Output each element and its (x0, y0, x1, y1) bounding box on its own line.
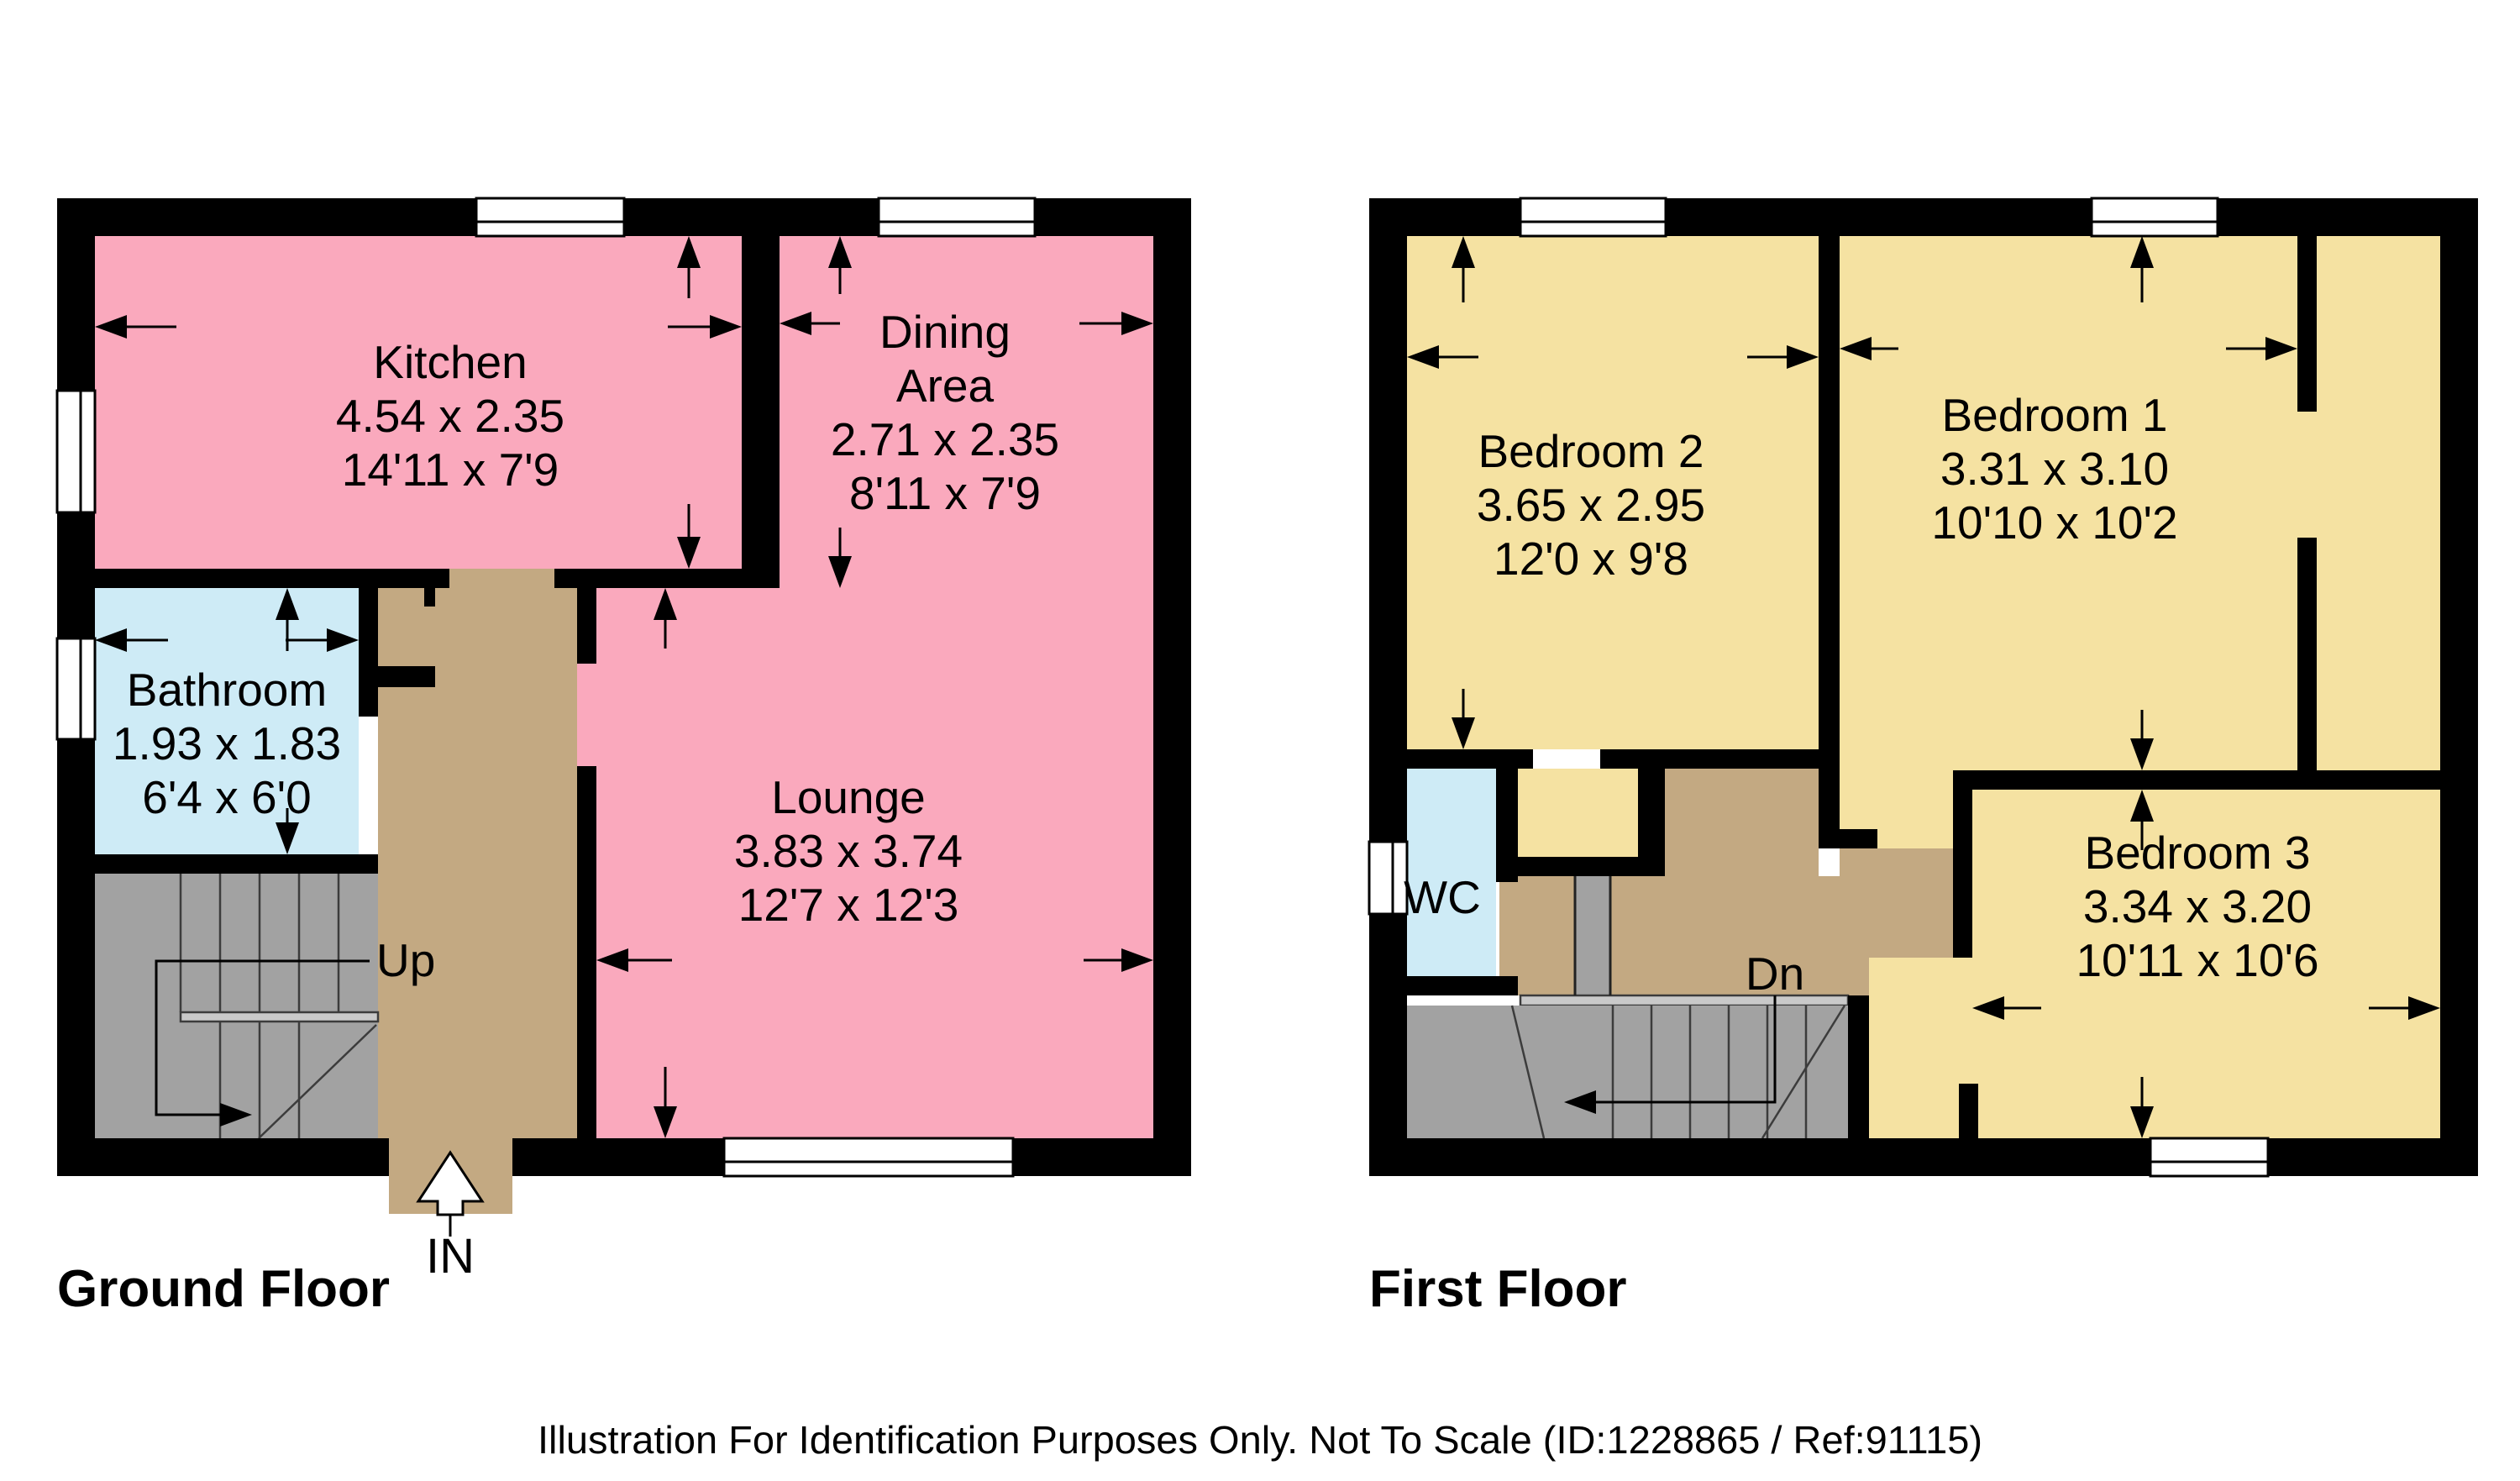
dining-top-window (879, 198, 1035, 236)
ground-stairs-area (95, 874, 378, 1138)
kitchen-metric: 4.54 x 2.35 (336, 390, 564, 442)
lounge-imperial: 12'7 x 12'3 (738, 879, 959, 931)
stairs-dn-label: Dn (1746, 948, 1804, 1000)
dining-label-line1: Dining (879, 306, 1011, 358)
first-floor-title: First Floor (1369, 1260, 1627, 1318)
dining-label-line2: Area (896, 360, 995, 412)
kitchen-top-window (476, 198, 624, 236)
wall-bathroom-right (359, 588, 378, 717)
bedroom3-alcove-area (1869, 958, 1972, 1138)
stair-landing-strip (181, 1012, 378, 1021)
wall-bedroom3-left (1953, 770, 1972, 958)
wall-bedroom3-door-stub (1959, 1084, 1978, 1138)
wall-outer-left (1369, 198, 1407, 1176)
bedroom3-bottom-window (2150, 1138, 2268, 1176)
wall-stairs-right (1848, 995, 1869, 1138)
bedroom3-label: Bedroom 3 (2084, 827, 2310, 879)
wall-outer-bottom-left (57, 1138, 389, 1176)
hallway-area (378, 569, 577, 1214)
lounge-metric: 3.83 x 3.74 (734, 825, 963, 877)
dining-metric: 2.71 x 2.35 (831, 413, 1059, 465)
wall-bedroom1-stub-upper (2297, 236, 2317, 412)
wall-outer-bottom (1369, 1138, 2478, 1176)
disclaimer-text: Illustration For Identification Purposes… (538, 1418, 1982, 1462)
wc-left-window (1369, 842, 1407, 914)
bedroom2-top-window (1520, 198, 1666, 236)
bathroom-left-window (57, 638, 95, 739)
kitchen-label: Kitchen (373, 336, 527, 388)
ground-floor-title: Ground Floor (57, 1260, 390, 1318)
bedroom2-metric: 3.65 x 2.95 (1477, 479, 1705, 531)
first-stairs-area (1407, 1006, 1848, 1138)
bedroom1-top-window (2092, 198, 2218, 236)
stairs-up-label: Up (376, 934, 435, 986)
bedroom1-imperial: 10'10 x 10'2 (1931, 496, 2177, 549)
bathroom-label: Bathroom (127, 664, 327, 716)
ground-floor-plan: Kitchen 4.54 x 2.35 14'11 x 7'9 Dining A… (57, 198, 1191, 1318)
floorplan-svg: Kitchen 4.54 x 2.35 14'11 x 7'9 Dining A… (0, 0, 2520, 1481)
lounge-bottom-window (724, 1138, 1013, 1176)
entrance-in-label: IN (426, 1229, 475, 1284)
kitchen-imperial: 14'11 x 7'9 (342, 444, 559, 496)
wall-bedroom3-top (1953, 770, 2440, 790)
landing-upper-area (1665, 769, 1819, 876)
wall-bedroom2-bottom-left (1407, 749, 1533, 769)
wall-bathroom-bottom (95, 854, 378, 874)
bedroom2-label: Bedroom 2 (1478, 425, 1704, 477)
wall-divider-end-stub (1819, 829, 1877, 848)
wc-label: WC (1404, 871, 1481, 923)
wall-lounge-left-upper (577, 588, 596, 664)
wall-bathroom-door-stub (378, 666, 435, 687)
wall-outer-right (2440, 198, 2478, 1176)
wall-kitchen-dining-divider (742, 236, 780, 588)
bedroom3-metric: 3.34 x 3.20 (2083, 880, 2312, 932)
bathroom-imperial: 6'4 x 6'0 (142, 771, 311, 823)
first-floor-plan: Bedroom 2 3.65 x 2.95 12'0 x 9'8 Bedroom… (1369, 198, 2478, 1318)
bedroom1-metric: 3.31 x 3.10 (1940, 443, 2169, 495)
bathroom-metric: 1.93 x 1.83 (113, 717, 341, 769)
wall-bedroom1-stub-lower (2297, 538, 2317, 770)
bedroom1-label: Bedroom 1 (1941, 389, 2167, 441)
bedroom3-imperial: 10'11 x 10'6 (2076, 934, 2318, 986)
floorplan-page: Kitchen 4.54 x 2.35 14'11 x 7'9 Dining A… (0, 0, 2520, 1481)
wall-lounge-left-lower (577, 766, 596, 1138)
wall-outer-right (1153, 198, 1191, 1176)
wall-bedroom2-bottom-right (1600, 749, 1840, 769)
wall-wc-bottom (1407, 976, 1518, 995)
bedroom2-imperial: 12'0 x 9'8 (1494, 533, 1688, 585)
kitchen-left-window (57, 391, 95, 512)
wall-cupboard-bottom (1499, 857, 1665, 876)
stair-void-area (1575, 876, 1610, 995)
first-floor-rooms (1407, 236, 2440, 1138)
wall-hall-door-stub (424, 588, 435, 607)
dining-imperial: 8'11 x 7'9 (849, 467, 1041, 519)
wall-kitchen-bottom-left (95, 569, 449, 588)
lounge-label: Lounge (771, 771, 926, 823)
